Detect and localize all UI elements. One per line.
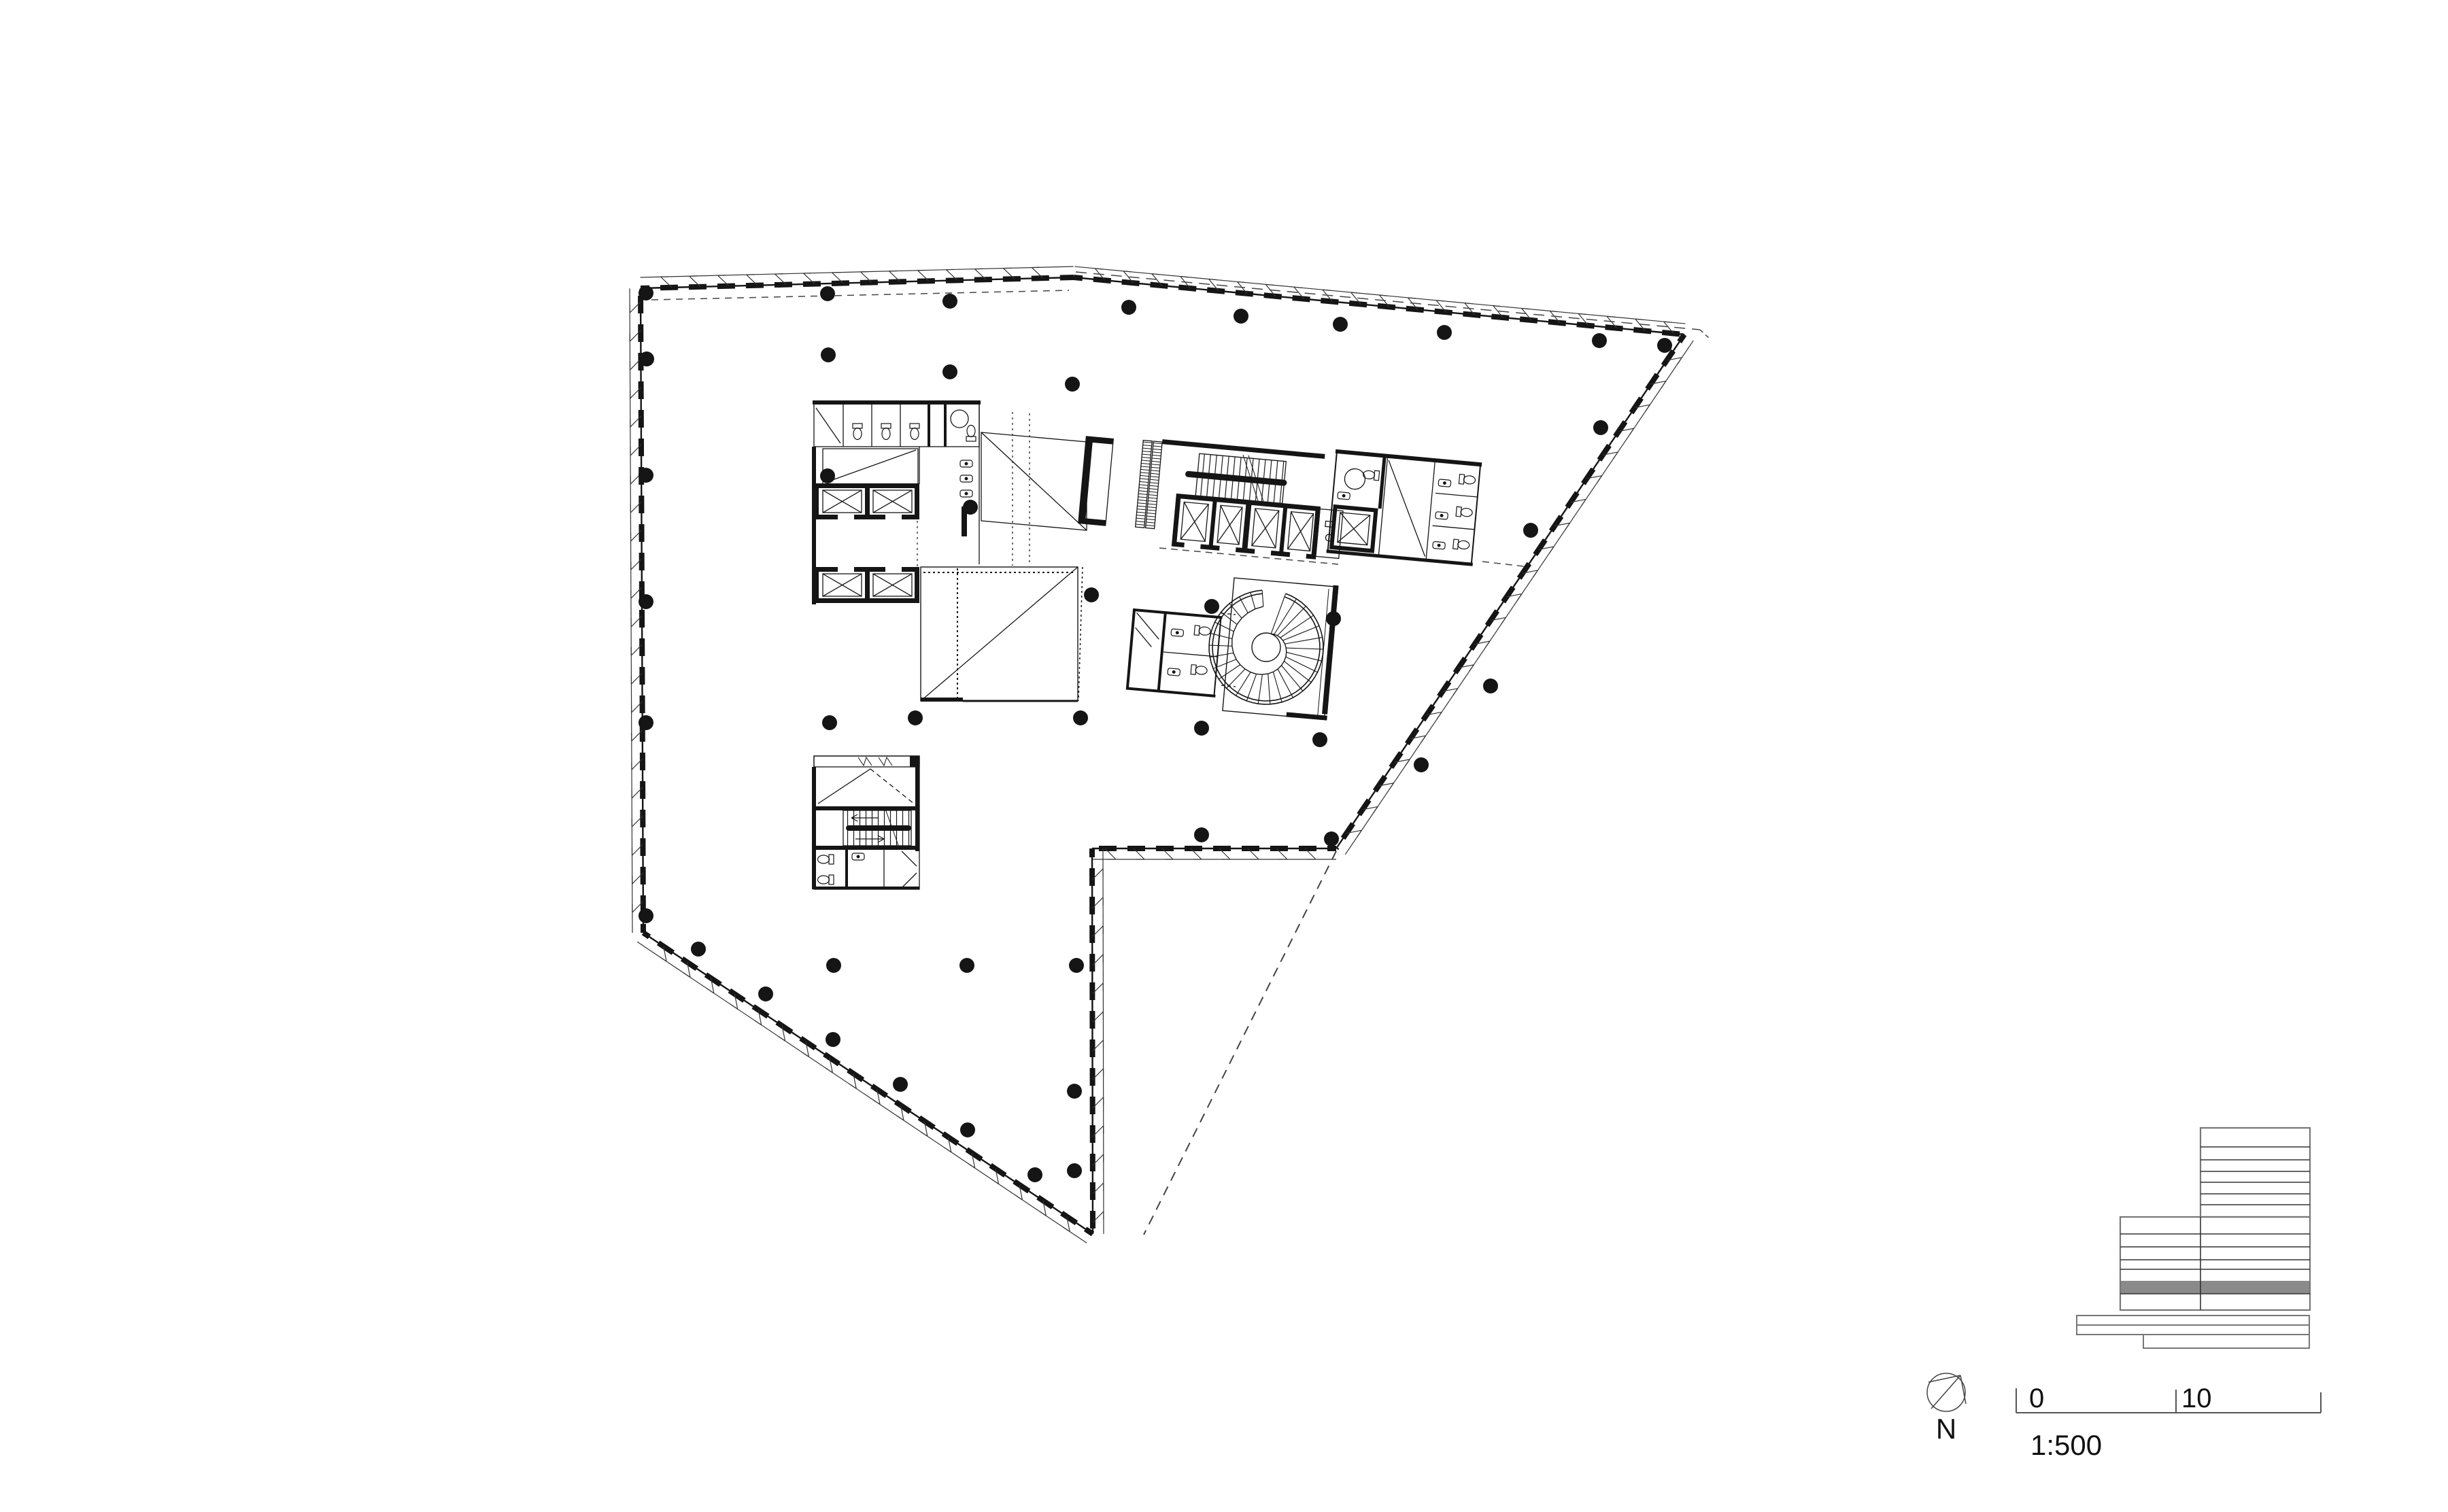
drawing-sheet: N 0 10 1:500 bbox=[0, 0, 2448, 1512]
section-key-diagram bbox=[2077, 1128, 2310, 1348]
core-spiral-wc-block bbox=[1126, 608, 1223, 698]
service-cores bbox=[812, 400, 1482, 889]
building-outline bbox=[630, 267, 1693, 1243]
core-upper-left bbox=[812, 400, 981, 604]
bridge-room bbox=[981, 432, 1087, 530]
scale-ratio-label: 1:500 bbox=[2030, 1429, 2102, 1461]
north-arrow bbox=[1927, 1373, 1966, 1411]
north-label: N bbox=[1936, 1413, 1956, 1445]
scale-tick-10: 10 bbox=[2181, 1384, 2212, 1413]
atrium-void bbox=[921, 567, 1083, 702]
floor-plan-canvas: N 0 10 1:500 bbox=[0, 0, 2448, 1512]
scale-bar bbox=[2016, 1388, 2321, 1413]
spiral-staircase bbox=[1209, 590, 1323, 704]
column-grid bbox=[639, 286, 1672, 1182]
core-right bbox=[1326, 449, 1482, 566]
core-lower-left bbox=[812, 756, 919, 889]
overhang-dashed-lines bbox=[651, 272, 1710, 1235]
core-central bbox=[1077, 432, 1348, 562]
scale-tick-0: 0 bbox=[2029, 1384, 2044, 1413]
